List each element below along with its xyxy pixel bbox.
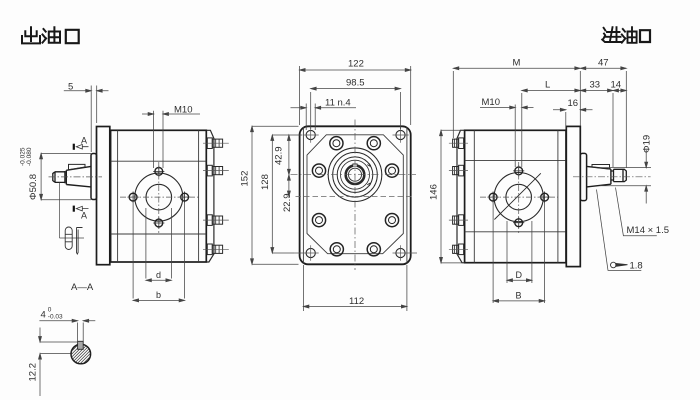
svg-text:11 n.4: 11 n.4 <box>325 98 351 109</box>
svg-text:M: M <box>513 57 521 68</box>
svg-text:12.2: 12.2 <box>28 363 39 382</box>
svg-text:98.5: 98.5 <box>346 77 365 88</box>
svg-text:5: 5 <box>68 81 73 92</box>
svg-text:M10: M10 <box>482 97 500 108</box>
svg-text:152: 152 <box>240 171 251 187</box>
svg-text:47: 47 <box>598 57 609 68</box>
svg-text:b: b <box>156 290 161 300</box>
svg-text:14: 14 <box>611 79 622 90</box>
svg-text:146: 146 <box>428 184 439 200</box>
svg-text:D: D <box>516 270 523 280</box>
svg-text:L: L <box>545 79 550 90</box>
svg-text:Φ19: Φ19 <box>641 135 652 153</box>
svg-text:1.8: 1.8 <box>630 261 643 272</box>
svg-text:33: 33 <box>590 79 601 90</box>
svg-text:M10: M10 <box>174 104 192 115</box>
svg-text:A: A <box>81 136 87 146</box>
svg-text:42.9: 42.9 <box>274 147 285 166</box>
svg-text:d: d <box>156 270 161 280</box>
svg-text:A: A <box>81 211 87 221</box>
svg-text:22.9: 22.9 <box>282 194 293 213</box>
svg-text:-0.03: -0.03 <box>48 313 63 320</box>
svg-text:16: 16 <box>568 98 579 109</box>
svg-text:A—A: A—A <box>71 282 94 293</box>
svg-text:128: 128 <box>260 174 271 190</box>
svg-text:112: 112 <box>349 296 364 307</box>
svg-text:B: B <box>516 290 522 300</box>
svg-text:122: 122 <box>348 59 364 70</box>
svg-text:4: 4 <box>41 309 46 320</box>
svg-text:Φ50.8: Φ50.8 <box>28 174 39 200</box>
svg-text:-0.080: -0.080 <box>26 147 33 166</box>
svg-text:M14 × 1.5: M14 × 1.5 <box>627 225 670 236</box>
